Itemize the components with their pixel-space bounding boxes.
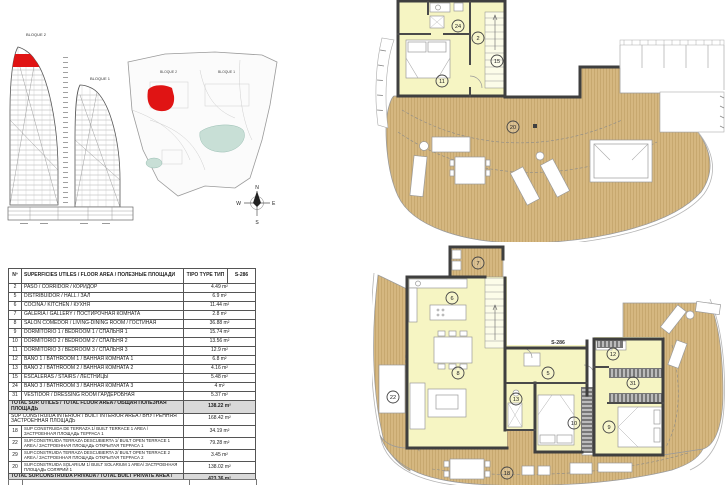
podium-base bbox=[8, 207, 133, 224]
svg-text:11: 11 bbox=[439, 79, 445, 85]
svg-text:2: 2 bbox=[476, 36, 479, 42]
tower-bloque-1: BLOQUE 1 bbox=[73, 76, 122, 207]
table-row: 9DORMITORIO 1 / BEDROOM 1 / СПАЛЬНЯ 115.… bbox=[9, 329, 256, 338]
floorplan-sheet: BLOQUE 2 bbox=[0, 0, 726, 485]
room-marker: 18 bbox=[501, 467, 513, 479]
room-marker: 9 bbox=[603, 421, 615, 433]
coffee-table bbox=[436, 395, 458, 409]
row-area-value: 6.9 m² bbox=[184, 293, 256, 302]
room-marker: 7 bbox=[472, 257, 484, 269]
compass-w: W bbox=[236, 201, 241, 207]
tower-bloque-2-label: BLOQUE 2 bbox=[26, 32, 47, 37]
sofa bbox=[410, 383, 425, 429]
row-description: DISTRIBUIDOR / HALL / ЗАЛ bbox=[22, 293, 184, 302]
row-description: ESCALERAS / STAIRS / ЛЕСТНИЦЫ bbox=[22, 374, 184, 383]
row-description: TOTAL SUP. UTILES / TOTAL FLOOR AREA / О… bbox=[9, 401, 184, 414]
table-row: 31VESTIDOR / DRESSING ROOM ГАРДЕРОБНАЯ5.… bbox=[9, 392, 256, 401]
table-row: 24BAÑO 3 / BATHROOM 3 / ВАННАЯ КОМНАТА 3… bbox=[9, 383, 256, 392]
svg-text:5: 5 bbox=[546, 371, 549, 377]
row-number: 5 bbox=[9, 293, 22, 302]
room-marker: 10 bbox=[568, 417, 580, 429]
row-area-value: 15.74 m² bbox=[184, 329, 256, 338]
row-description: BAÑO 1 / BATHROOM 1 / ВАННАЯ КОМНАТА 1 bbox=[22, 356, 184, 365]
row-description: SALÓN COMEDOR / LIVING-DINING ROOM / ГОС… bbox=[22, 320, 184, 329]
outdoor-table bbox=[450, 459, 484, 479]
table-row: 2PASO / CORRIDOR / КОРИДОР4.49 m² bbox=[9, 284, 256, 293]
header-type-code: S-286 bbox=[228, 269, 256, 284]
svg-text:18: 18 bbox=[504, 471, 510, 477]
row-description: SUP.CONSTRUIDA SOLARIUM 1/ BUILT SOLARIU… bbox=[22, 462, 184, 474]
room-marker: 2 bbox=[472, 32, 484, 44]
compass-s: S bbox=[255, 220, 259, 226]
site-bloque-1-label: BLOQUE 1 bbox=[218, 70, 235, 74]
room-marker: 22 bbox=[387, 391, 399, 403]
table-row: TOTAL SUP. UTILES / TOTAL FLOOR AREA / О… bbox=[9, 401, 256, 414]
tower-bloque-2: BLOQUE 2 bbox=[8, 32, 60, 205]
row-number: 13 bbox=[9, 365, 22, 374]
compass-rose: N S W E bbox=[236, 185, 276, 226]
svg-text:24: 24 bbox=[455, 24, 461, 30]
row-description: DORMITORIO 1 / BEDROOM 1 / СПАЛЬНЯ 1 bbox=[22, 329, 184, 338]
row-number: 11 bbox=[9, 347, 22, 356]
row-area-value: 6.8 m² bbox=[184, 356, 256, 365]
table-row: 8SALÓN COMEDOR / LIVING-DINING ROOM / ГО… bbox=[9, 320, 256, 329]
table-row: 18SUP CONSTRUIDA DE TERRAZA 1/ BUILT TER… bbox=[9, 426, 256, 438]
header-tipo: TIPO TYPE ТИП bbox=[184, 269, 228, 284]
room-marker: 13 bbox=[510, 393, 522, 405]
kitchen-island bbox=[430, 305, 466, 320]
area-table: Nº SUPERFICIES UTILES / FLOOR AREA / ПОЛ… bbox=[8, 268, 256, 485]
row-description: SUP.CONSTRUIDA TERRAZA DESCUBIERTA 2/ BU… bbox=[22, 450, 184, 462]
dining-table bbox=[434, 337, 472, 363]
svg-text:20: 20 bbox=[510, 125, 516, 131]
row-number: 24 bbox=[9, 383, 22, 392]
row-number: 9 bbox=[9, 329, 22, 338]
type-code-label: S-286 bbox=[551, 340, 565, 346]
table-row: SUP CONSTRUIDA INTERIOR / BUILT INTERIOR… bbox=[9, 413, 256, 426]
svg-text:22: 22 bbox=[390, 395, 396, 401]
row-description: DORMITORIO 3 / BEDROOM 3 / СПАЛЬНЯ 3 bbox=[22, 347, 184, 356]
row-number: 6 bbox=[9, 302, 22, 311]
table-row: 22SUP.CONSTRUIDA TERRAZA DESCUBIERTA 1/ … bbox=[9, 438, 256, 450]
row-description: COCINA / KITCHEN / КУХНЯ bbox=[22, 302, 184, 311]
row-area-value: 13.56 m² bbox=[184, 338, 256, 347]
row-area-value: 3.45 m² bbox=[184, 450, 256, 462]
row-area-value: 2.8 m² bbox=[184, 311, 256, 320]
svg-text:8: 8 bbox=[456, 371, 459, 377]
table-row: 10DORMITORIO 2 / BEDROOM 2 / СПАЛЬНЯ 213… bbox=[9, 338, 256, 347]
table-row: 7GALERÍA / GALLERY / ПОСТИРОЧНАЯ КОМНАТА… bbox=[9, 311, 256, 320]
room-marker: 12 bbox=[607, 348, 619, 360]
table-row: 15ESCALERAS / STAIRS / ЛЕСТНИЦЫ5.48 m² bbox=[9, 374, 256, 383]
row-area-value: 4 m² bbox=[184, 383, 256, 392]
row-description: BAÑO 2 / BATHROOM 2 / ВАННАЯ КОМНАТА 2 bbox=[22, 365, 184, 374]
row-number: 2 bbox=[9, 284, 22, 293]
row-number: 22 bbox=[9, 438, 22, 450]
table-row: 11DORMITORIO 3 / BEDROOM 3 / СПАЛЬНЯ 312… bbox=[9, 347, 256, 356]
room-marker: 20 bbox=[507, 121, 519, 133]
row-area-value: 138.22 m² bbox=[184, 401, 256, 414]
row-area-value: 34.19 m² bbox=[184, 426, 256, 438]
table-row: 20SUP.CONSTRUIDA SOLARIUM 1/ BUILT SOLAR… bbox=[9, 462, 256, 474]
tower-bloque-1-label: BLOQUE 1 bbox=[90, 76, 111, 81]
main-floor-plan: S-286 7 6 8 22 5 13 10 bbox=[372, 245, 726, 485]
row-description: BAÑO 3 / BATHROOM 3 / ВАННАЯ КОМНАТА 3 bbox=[22, 383, 184, 392]
compass-needle bbox=[253, 191, 261, 207]
table-header-row: Nº SUPERFICIES UTILES / FLOOR AREA / ПОЛ… bbox=[9, 269, 256, 284]
second-table-cutoff bbox=[8, 479, 257, 485]
room-marker: 11 bbox=[436, 75, 448, 87]
svg-text:31: 31 bbox=[630, 381, 636, 387]
row-description: SUP CONSTRUIDA DE TERRAZA 1/ BUILT TERRA… bbox=[22, 426, 184, 438]
table-row: 5DISTRIBUIDOR / HALL / ЗАЛ6.9 m² bbox=[9, 293, 256, 302]
svg-text:6: 6 bbox=[450, 296, 453, 302]
compass-n: N bbox=[255, 185, 259, 191]
row-area-value: 5.48 m² bbox=[184, 374, 256, 383]
compass-e: E bbox=[272, 201, 276, 207]
row-description: DORMITORIO 2 / BEDROOM 2 / СПАЛЬНЯ 2 bbox=[22, 338, 184, 347]
solarium-plan: 24 2 15 11 20 bbox=[372, 0, 726, 242]
row-area-value: 4.49 m² bbox=[184, 284, 256, 293]
row-area-value: 4.16 m² bbox=[184, 365, 256, 374]
row-area-value: 138.02 m² bbox=[184, 462, 256, 474]
row-number: 12 bbox=[9, 356, 22, 365]
location-panel: BLOQUE 2 bbox=[0, 0, 292, 240]
pergola bbox=[379, 365, 405, 413]
row-area-value: 168.42 m² bbox=[184, 413, 256, 426]
header-description: SUPERFICIES UTILES / FLOOR AREA / ПОЛЕЗН… bbox=[22, 269, 184, 284]
svg-text:10: 10 bbox=[571, 421, 577, 427]
row-number: 10 bbox=[9, 338, 22, 347]
area-table-body: 2PASO / CORRIDOR / КОРИДОР4.49 m²5DISTRI… bbox=[9, 284, 256, 485]
row-number: 29 bbox=[9, 450, 22, 462]
row-area-value: 12.9 m² bbox=[184, 347, 256, 356]
table-row: 6COCINA / KITCHEN / КУХНЯ11.44 m² bbox=[9, 302, 256, 311]
row-description: PASO / CORRIDOR / КОРИДОР bbox=[22, 284, 184, 293]
bed bbox=[406, 40, 450, 78]
row-number: 15 bbox=[9, 374, 22, 383]
svg-text:12: 12 bbox=[610, 352, 616, 358]
row-area-value: 11.44 m² bbox=[184, 302, 256, 311]
row-description: SUP CONSTRUIDA INTERIOR / BUILT INTERIOR… bbox=[9, 413, 184, 426]
room-marker: 6 bbox=[446, 292, 458, 304]
svg-text:15: 15 bbox=[494, 59, 500, 65]
header-num: Nº bbox=[9, 269, 22, 284]
row-area-value: 79.28 m² bbox=[184, 438, 256, 450]
site-pond bbox=[146, 158, 162, 168]
svg-text:9: 9 bbox=[607, 425, 610, 431]
row-description: GALERÍA / GALLERY / ПОСТИРОЧНАЯ КОМНАТА bbox=[22, 311, 184, 320]
room-marker: 5 bbox=[542, 367, 554, 379]
floor-number-strip bbox=[63, 57, 68, 203]
row-description: VESTIDOR / DRESSING ROOM ГАРДЕРОБНАЯ bbox=[22, 392, 184, 401]
row-area-value: 5.37 m² bbox=[184, 392, 256, 401]
row-description: SUP.CONSTRUIDA TERRAZA DESCUBIERTA 1/ BU… bbox=[22, 438, 184, 450]
row-number: 20 bbox=[9, 462, 22, 474]
site-bloque-2-label: BLOQUE 2 bbox=[160, 70, 177, 74]
row-number: 18 bbox=[9, 426, 22, 438]
row-number: 8 bbox=[9, 320, 22, 329]
table-row: 13BAÑO 2 / BATHROOM 2 / ВАННАЯ КОМНАТА 2… bbox=[9, 365, 256, 374]
svg-text:13: 13 bbox=[513, 397, 519, 403]
room-marker: 15 bbox=[491, 55, 503, 67]
site-plan: BLOQUE 2 BLOQUE 1 bbox=[128, 52, 277, 196]
highlighted-floor-band bbox=[8, 54, 42, 67]
row-number: 7 bbox=[9, 311, 22, 320]
svg-text:7: 7 bbox=[476, 261, 479, 267]
table-row: 12BAÑO 1 / BATHROOM 1 / ВАННАЯ КОМНАТА 1… bbox=[9, 356, 256, 365]
row-area-value: 36.88 m² bbox=[184, 320, 256, 329]
room-marker: 8 bbox=[452, 367, 464, 379]
table-row: 29SUP.CONSTRUIDA TERRAZA DESCUBIERTA 2/ … bbox=[9, 450, 256, 462]
site-highlighted-building bbox=[148, 85, 175, 111]
room-marker: 24 bbox=[452, 20, 464, 32]
room-marker: 31 bbox=[627, 377, 639, 389]
row-number: 31 bbox=[9, 392, 22, 401]
